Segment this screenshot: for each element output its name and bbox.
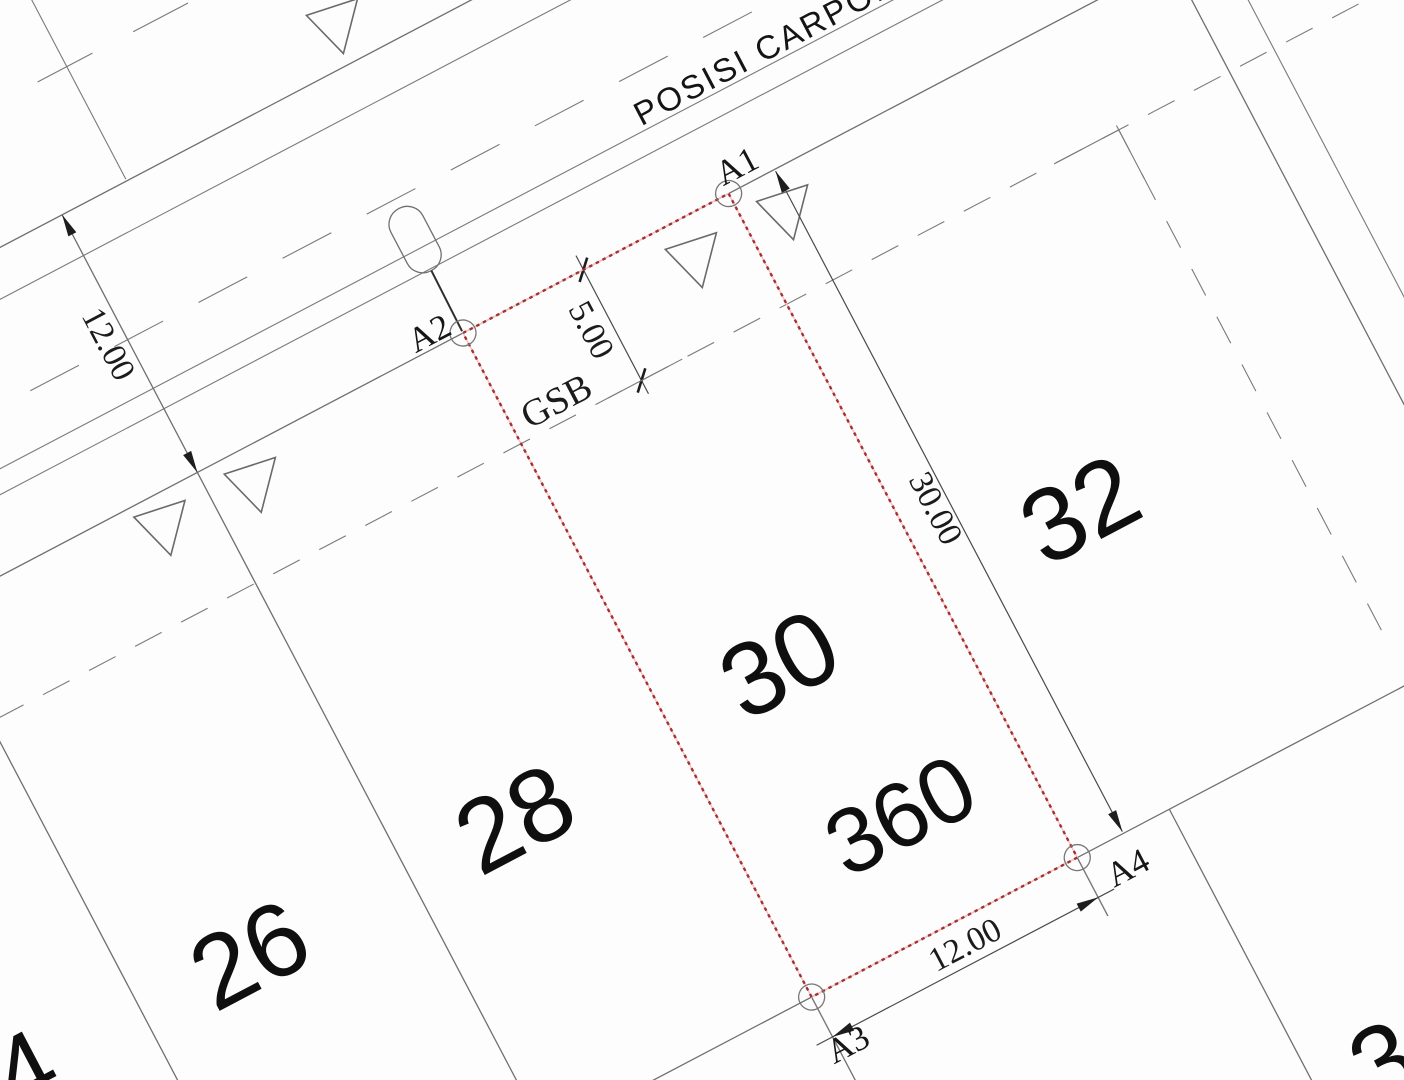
site-plan-screenshot: 12.00 5.00 30.00 — [0, 0, 1404, 1080]
site-plan-canvas: 12.00 5.00 30.00 — [0, 0, 1404, 1080]
